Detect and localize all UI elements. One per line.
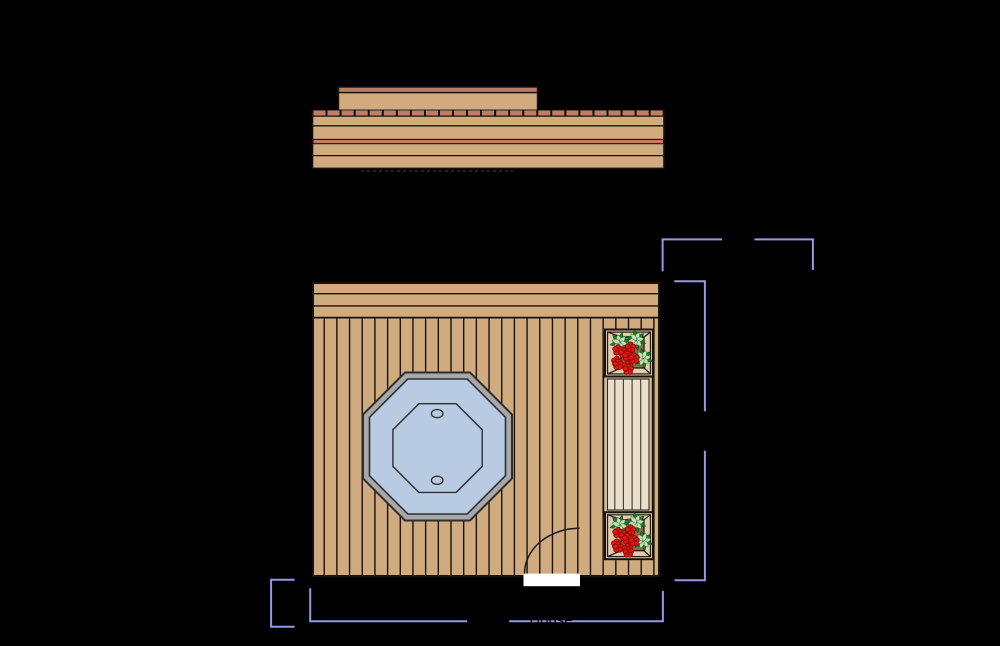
svg-text:House: House xyxy=(529,612,572,629)
